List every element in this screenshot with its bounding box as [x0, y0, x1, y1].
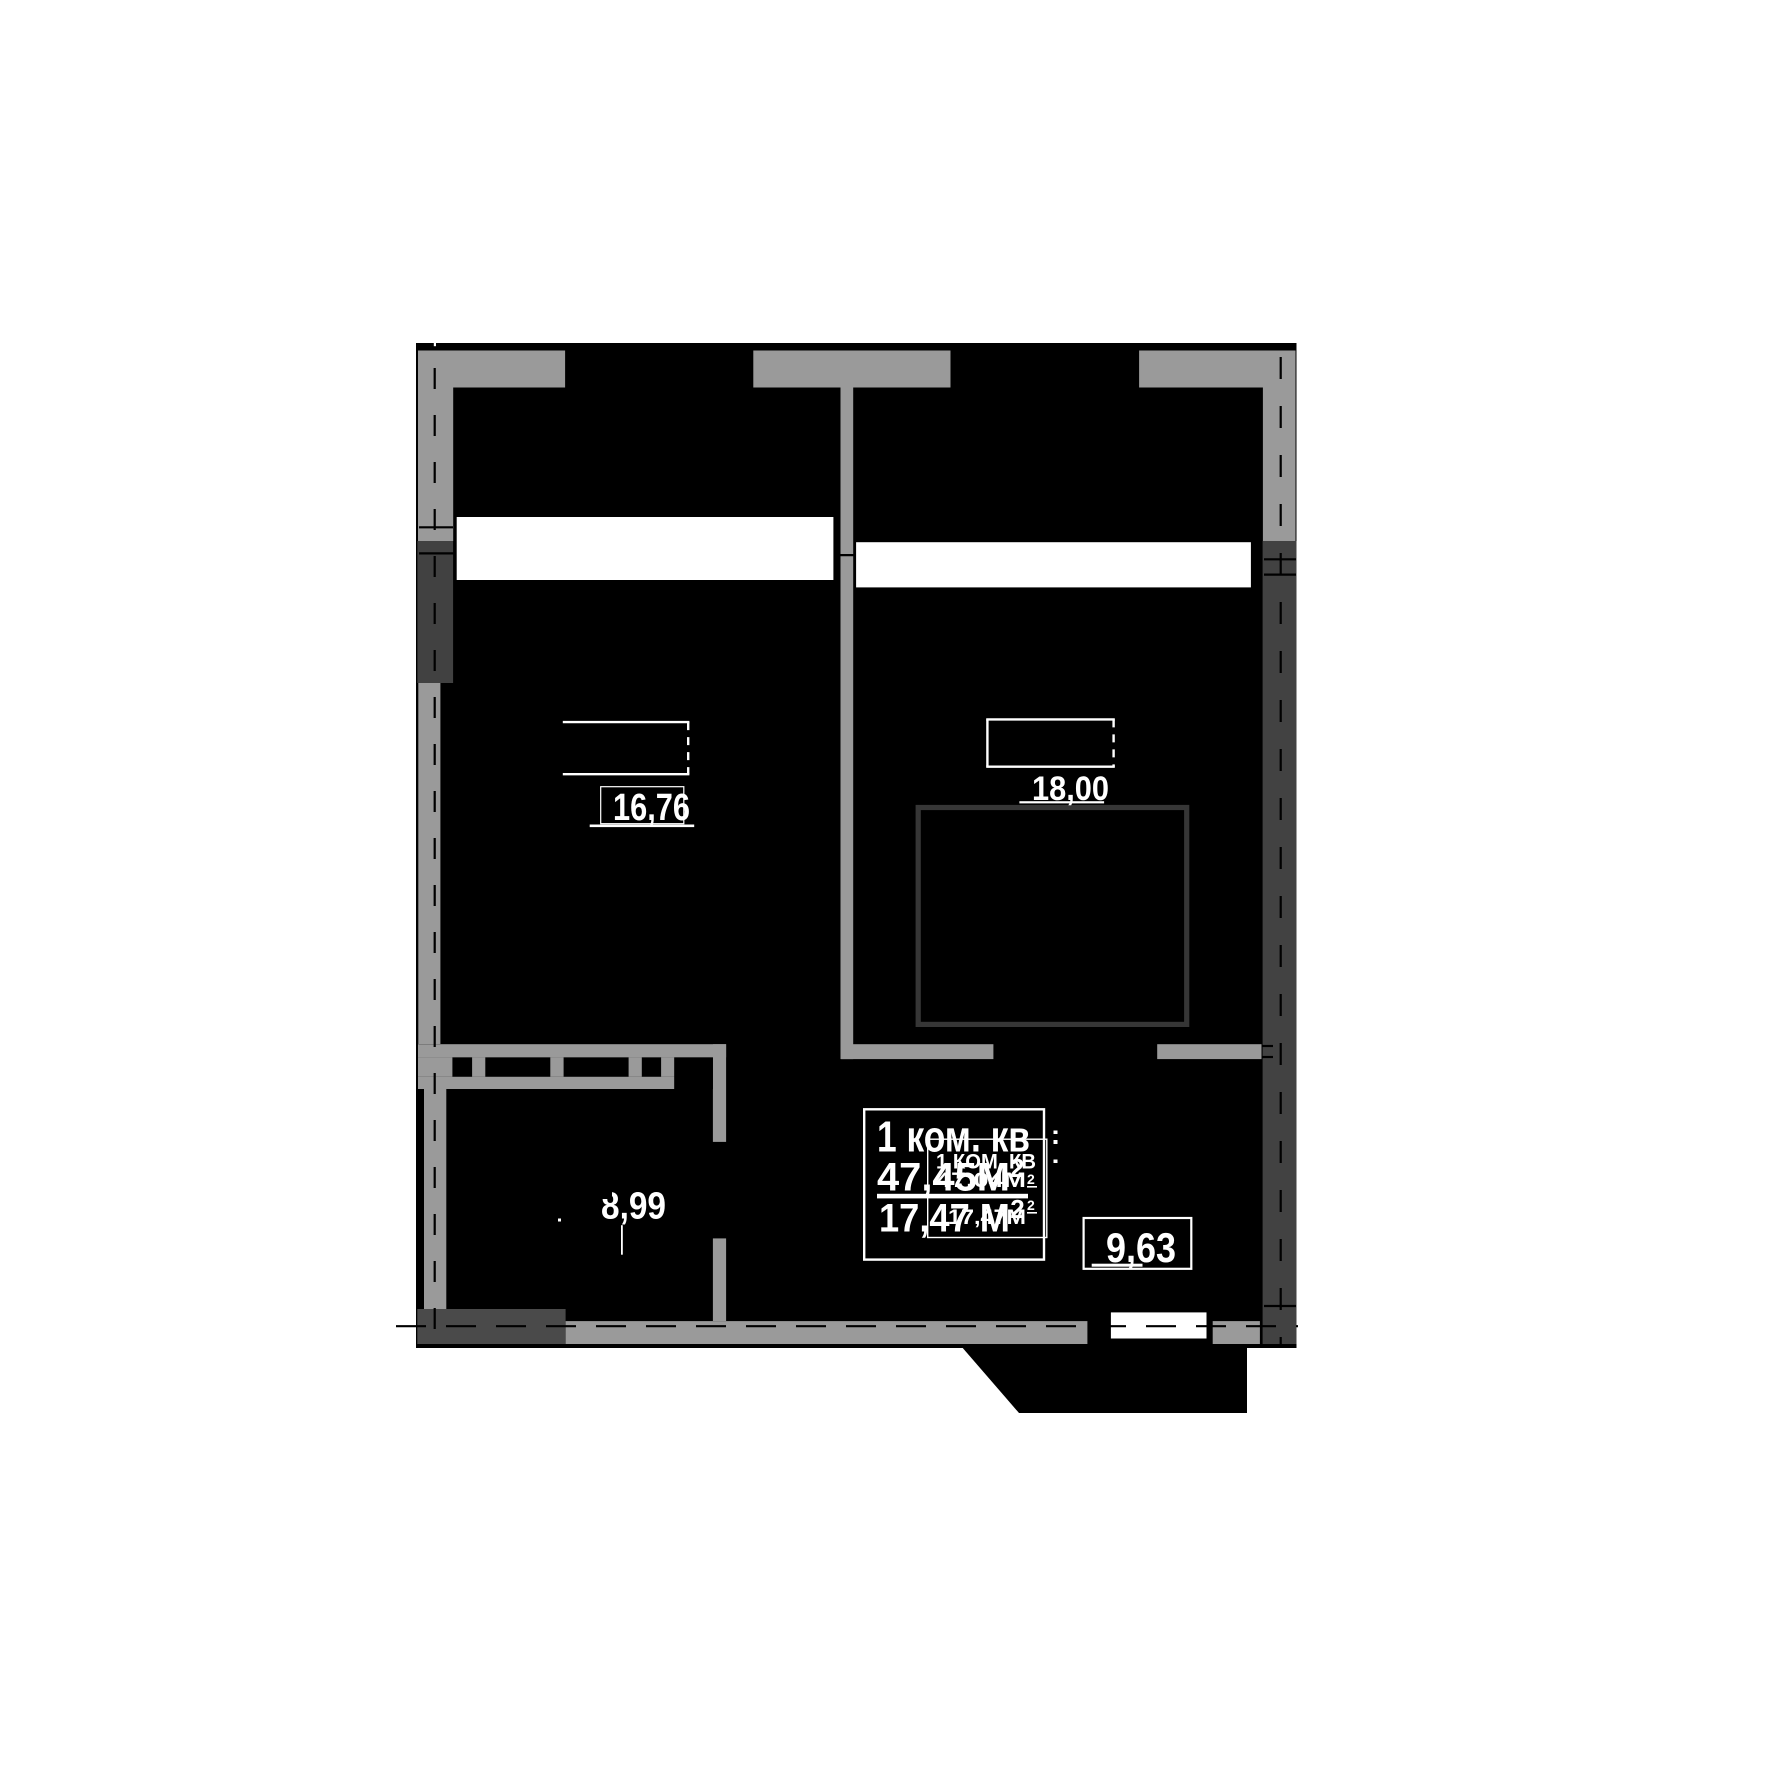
svg-text:2: 2: [1027, 1197, 1035, 1213]
svg-text:17,47М: 17,47М: [948, 1206, 1026, 1229]
svg-text:16,76: 16,76: [613, 787, 690, 829]
svg-text:2: 2: [1027, 1171, 1035, 1187]
svg-text:47,04М: 47,04М: [936, 1169, 1026, 1192]
